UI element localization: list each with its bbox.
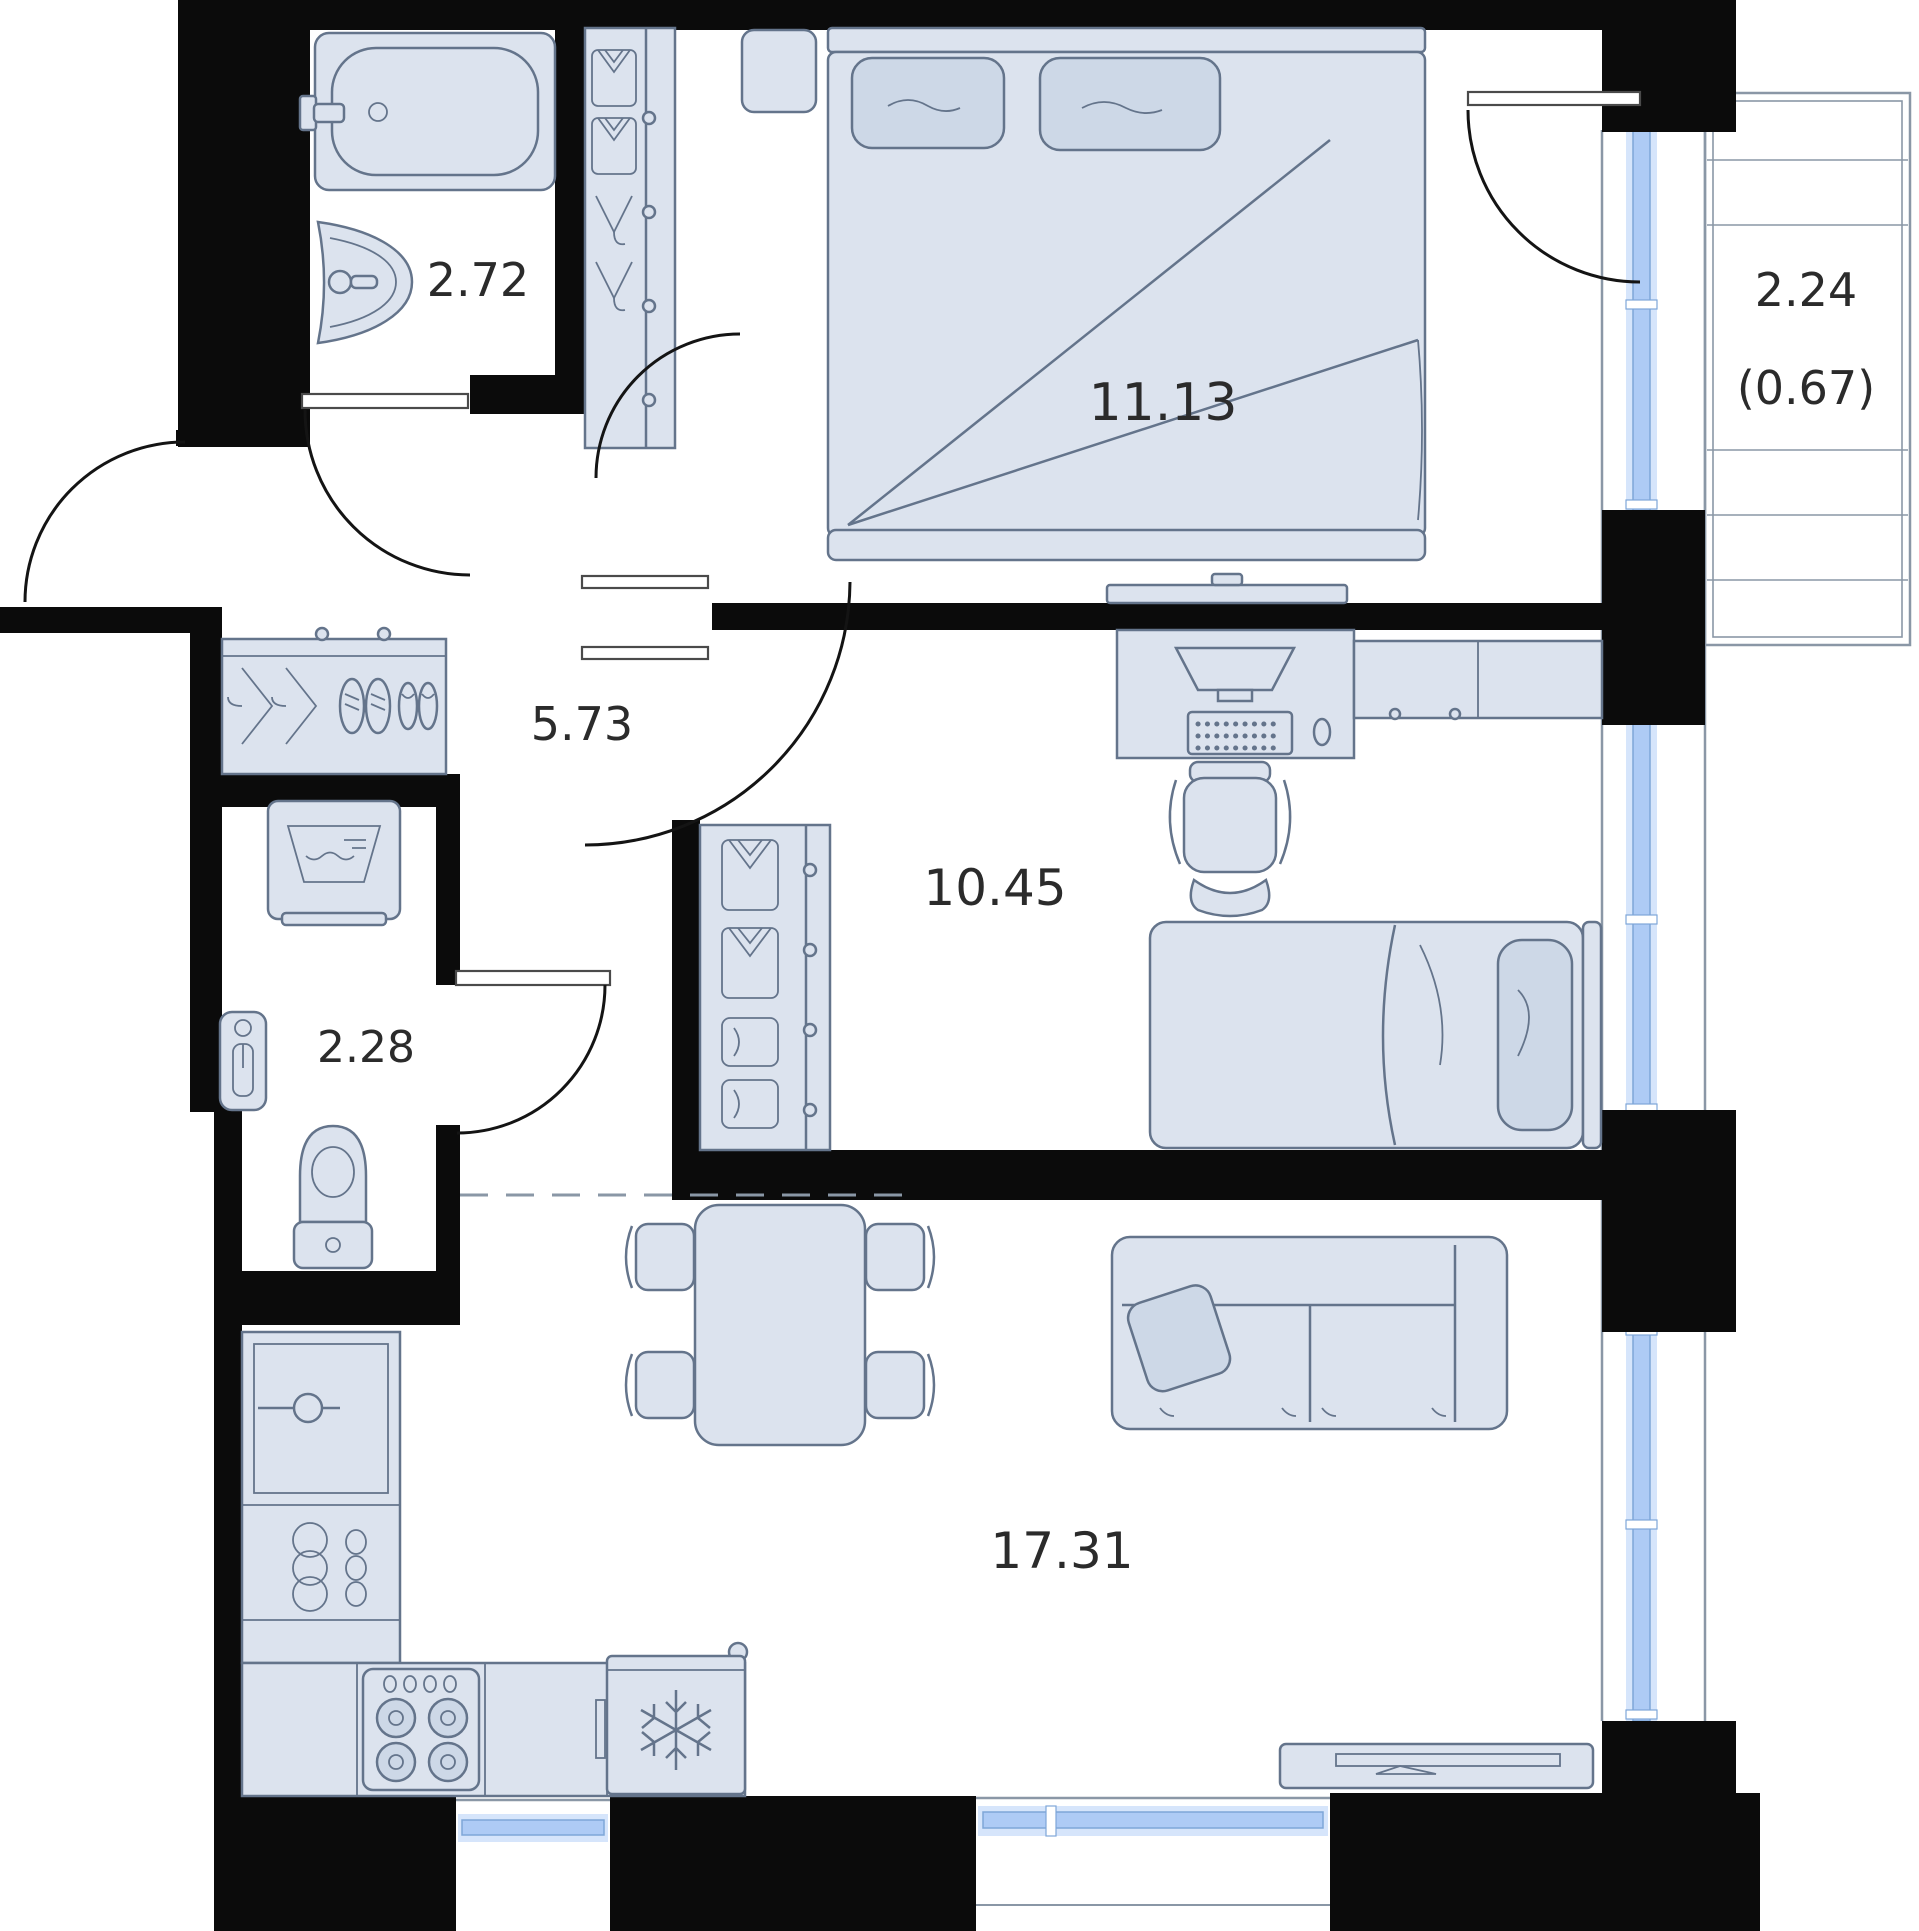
wall-bathroom-right — [555, 0, 585, 414]
wall-wc-bottom — [214, 1271, 460, 1325]
double-bed-icon — [828, 28, 1425, 560]
wardrobe-icon — [700, 825, 830, 1150]
washing-machine-icon — [268, 801, 400, 925]
floor-plan-page: 2.72 — [0, 0, 1919, 1931]
wall-right-pier-b — [1602, 1110, 1736, 1332]
fridge-icon — [607, 1643, 747, 1794]
tv-console-icon — [1280, 1744, 1593, 1788]
wall-right-pier-a — [1602, 510, 1705, 725]
bedside-table-icon — [742, 30, 816, 112]
hall-closet-icon — [222, 628, 446, 774]
wall-entry-stub — [0, 607, 190, 633]
floor-plan: 2.72 — [0, 0, 1919, 1931]
desk-icon — [1117, 630, 1354, 758]
bedroom-area-label: 11.13 — [1089, 373, 1238, 433]
keyboard-icon — [1188, 712, 1292, 754]
water-heater-icon — [220, 1012, 266, 1110]
balcony-reduced-area-label: (0.67) — [1737, 361, 1875, 415]
sofa-icon — [1112, 1237, 1507, 1429]
stove-icon — [363, 1669, 479, 1790]
wall-hall-left — [190, 607, 222, 1112]
toilet-icon — [294, 1126, 372, 1268]
wall-room-living-divider — [672, 1150, 1602, 1200]
balcony-area-label: 2.24 — [1755, 263, 1857, 317]
wall-bathroom-bottom-left — [184, 375, 308, 414]
wall-wc-right-upper — [436, 774, 460, 985]
wall-top — [178, 0, 1602, 30]
pillow-icon — [1498, 940, 1572, 1130]
study-area-label: 10.45 — [923, 859, 1066, 917]
single-bed-icon — [1150, 922, 1601, 1148]
wall-right-bottom-pier — [1602, 1721, 1736, 1801]
wall-bottom-middle — [610, 1796, 976, 1931]
hallway-area-label: 5.73 — [531, 697, 633, 751]
room-bathroom: 2.72 — [300, 33, 555, 343]
wall-room-left — [672, 820, 700, 1200]
kitchen-window — [456, 1796, 610, 1866]
wall-bottom-right — [1330, 1793, 1760, 1931]
bathroom-area-label: 2.72 — [427, 253, 529, 307]
mouse-icon — [1314, 719, 1330, 745]
kitchen-living-area-label: 17.31 — [990, 1522, 1133, 1580]
bathtub-icon — [300, 33, 555, 190]
wc-area-label: 2.28 — [317, 1022, 415, 1073]
wall-top-right-pier — [1602, 0, 1736, 132]
window-glass — [1633, 104, 1650, 1721]
wall-bottom-left — [214, 1796, 456, 1931]
